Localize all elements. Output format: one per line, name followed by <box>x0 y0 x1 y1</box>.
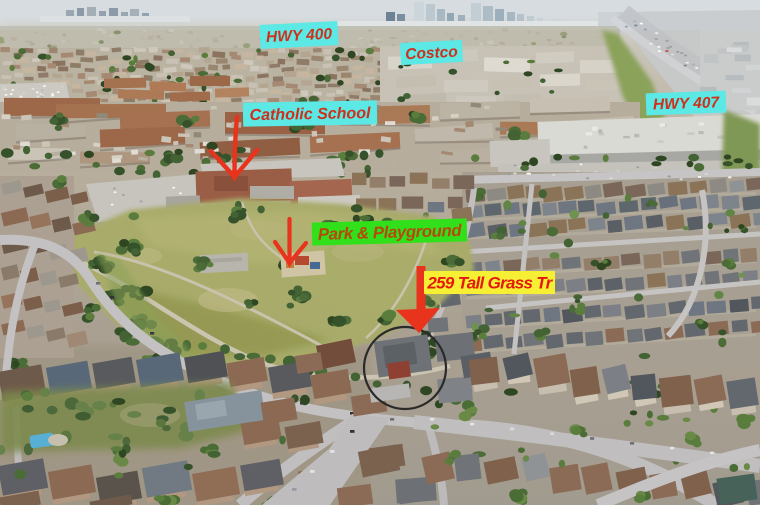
svg-text:Catholic School: Catholic School <box>249 105 371 124</box>
svg-text:Costco: Costco <box>405 44 458 64</box>
svg-text:HWY 407: HWY 407 <box>653 94 721 113</box>
svg-text:HWY 400: HWY 400 <box>266 26 333 46</box>
svg-text:Park & Playground: Park & Playground <box>318 221 463 244</box>
svg-text:259 Tall Grass Tr: 259 Tall Grass Tr <box>426 273 553 292</box>
